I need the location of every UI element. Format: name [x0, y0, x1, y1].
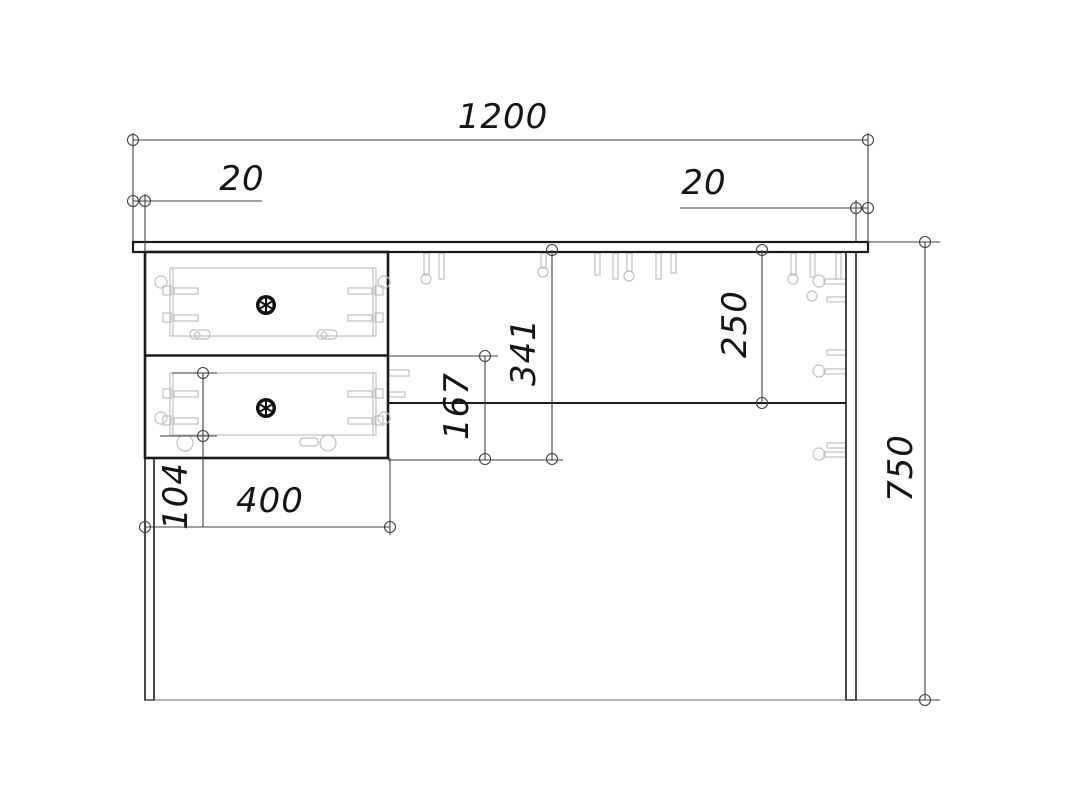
dim-label-lower-drawer-front-height: 167	[437, 372, 477, 440]
dimension-right-overhang: 20	[680, 163, 874, 242]
dim-label-back-rail-drop: 250	[715, 290, 755, 358]
dimension-lower-drawer-front-height: 167	[388, 351, 498, 465]
hidden-hardware-right-of-drawers	[389, 370, 409, 397]
dimension-back-rail-drop: 250	[715, 245, 768, 409]
right-leg	[846, 252, 856, 700]
dim-label-right-overhang: 20	[681, 163, 726, 203]
lower-drawer-knob-icon	[256, 398, 276, 418]
upper-drawer-knob-icon	[256, 295, 276, 315]
drawing-canvas: 1200 20 20 341 167 250	[0, 0, 1067, 800]
dim-label-left-overhang: 20	[219, 159, 264, 199]
dim-label-overall-width: 1200	[458, 97, 549, 137]
dim-label-overall-height: 750	[881, 434, 921, 502]
dimension-overall-height: 750	[856, 237, 940, 706]
technical-drawing: 1200 20 20 341 167 250	[0, 0, 1067, 800]
dim-label-drawer-block-width: 400	[236, 481, 304, 521]
dim-label-drawer-block-height: 341	[504, 318, 544, 386]
hidden-hardware-right-leg	[813, 275, 846, 460]
drawer-unit	[145, 252, 390, 458]
dim-label-drawer-side-height: 104	[156, 462, 196, 530]
dimension-left-overhang: 20	[128, 159, 265, 252]
